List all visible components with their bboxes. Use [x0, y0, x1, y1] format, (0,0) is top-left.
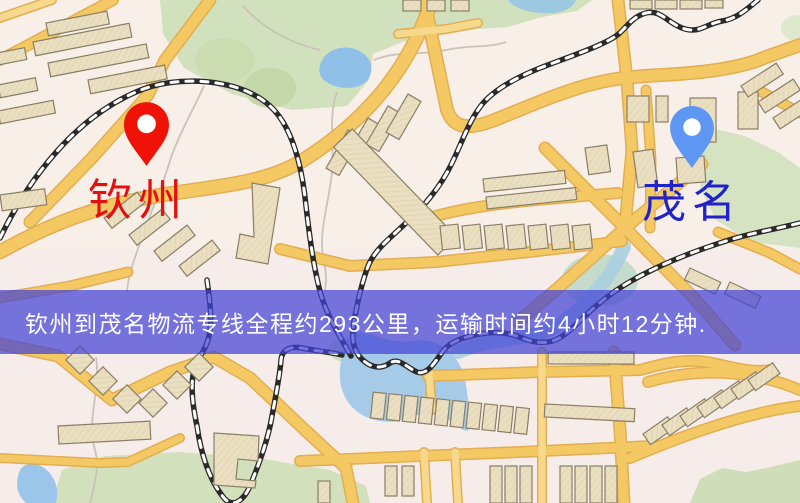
map-canvas[interactable]: 钦州 茂名 钦州到茂名物流专线全程约293公里，运输时间约4小时12分钟. [0, 0, 800, 503]
blue-pin-icon [670, 106, 714, 168]
red-pin-icon [124, 101, 169, 167]
route-info-banner: 钦州到茂名物流专线全程约293公里，运输时间约4小时12分钟. [0, 290, 800, 354]
map-background-graphic [0, 0, 800, 503]
label-maoming: 茂名 [642, 181, 742, 225]
marker-pin-qinzhou[interactable] [124, 101, 169, 167]
label-qinzhou: 钦州 [88, 179, 188, 223]
route-info-text: 钦州到茂名物流专线全程约293公里，运输时间约4小时12分钟. [0, 305, 707, 339]
marker-pin-maoming[interactable] [670, 106, 714, 168]
